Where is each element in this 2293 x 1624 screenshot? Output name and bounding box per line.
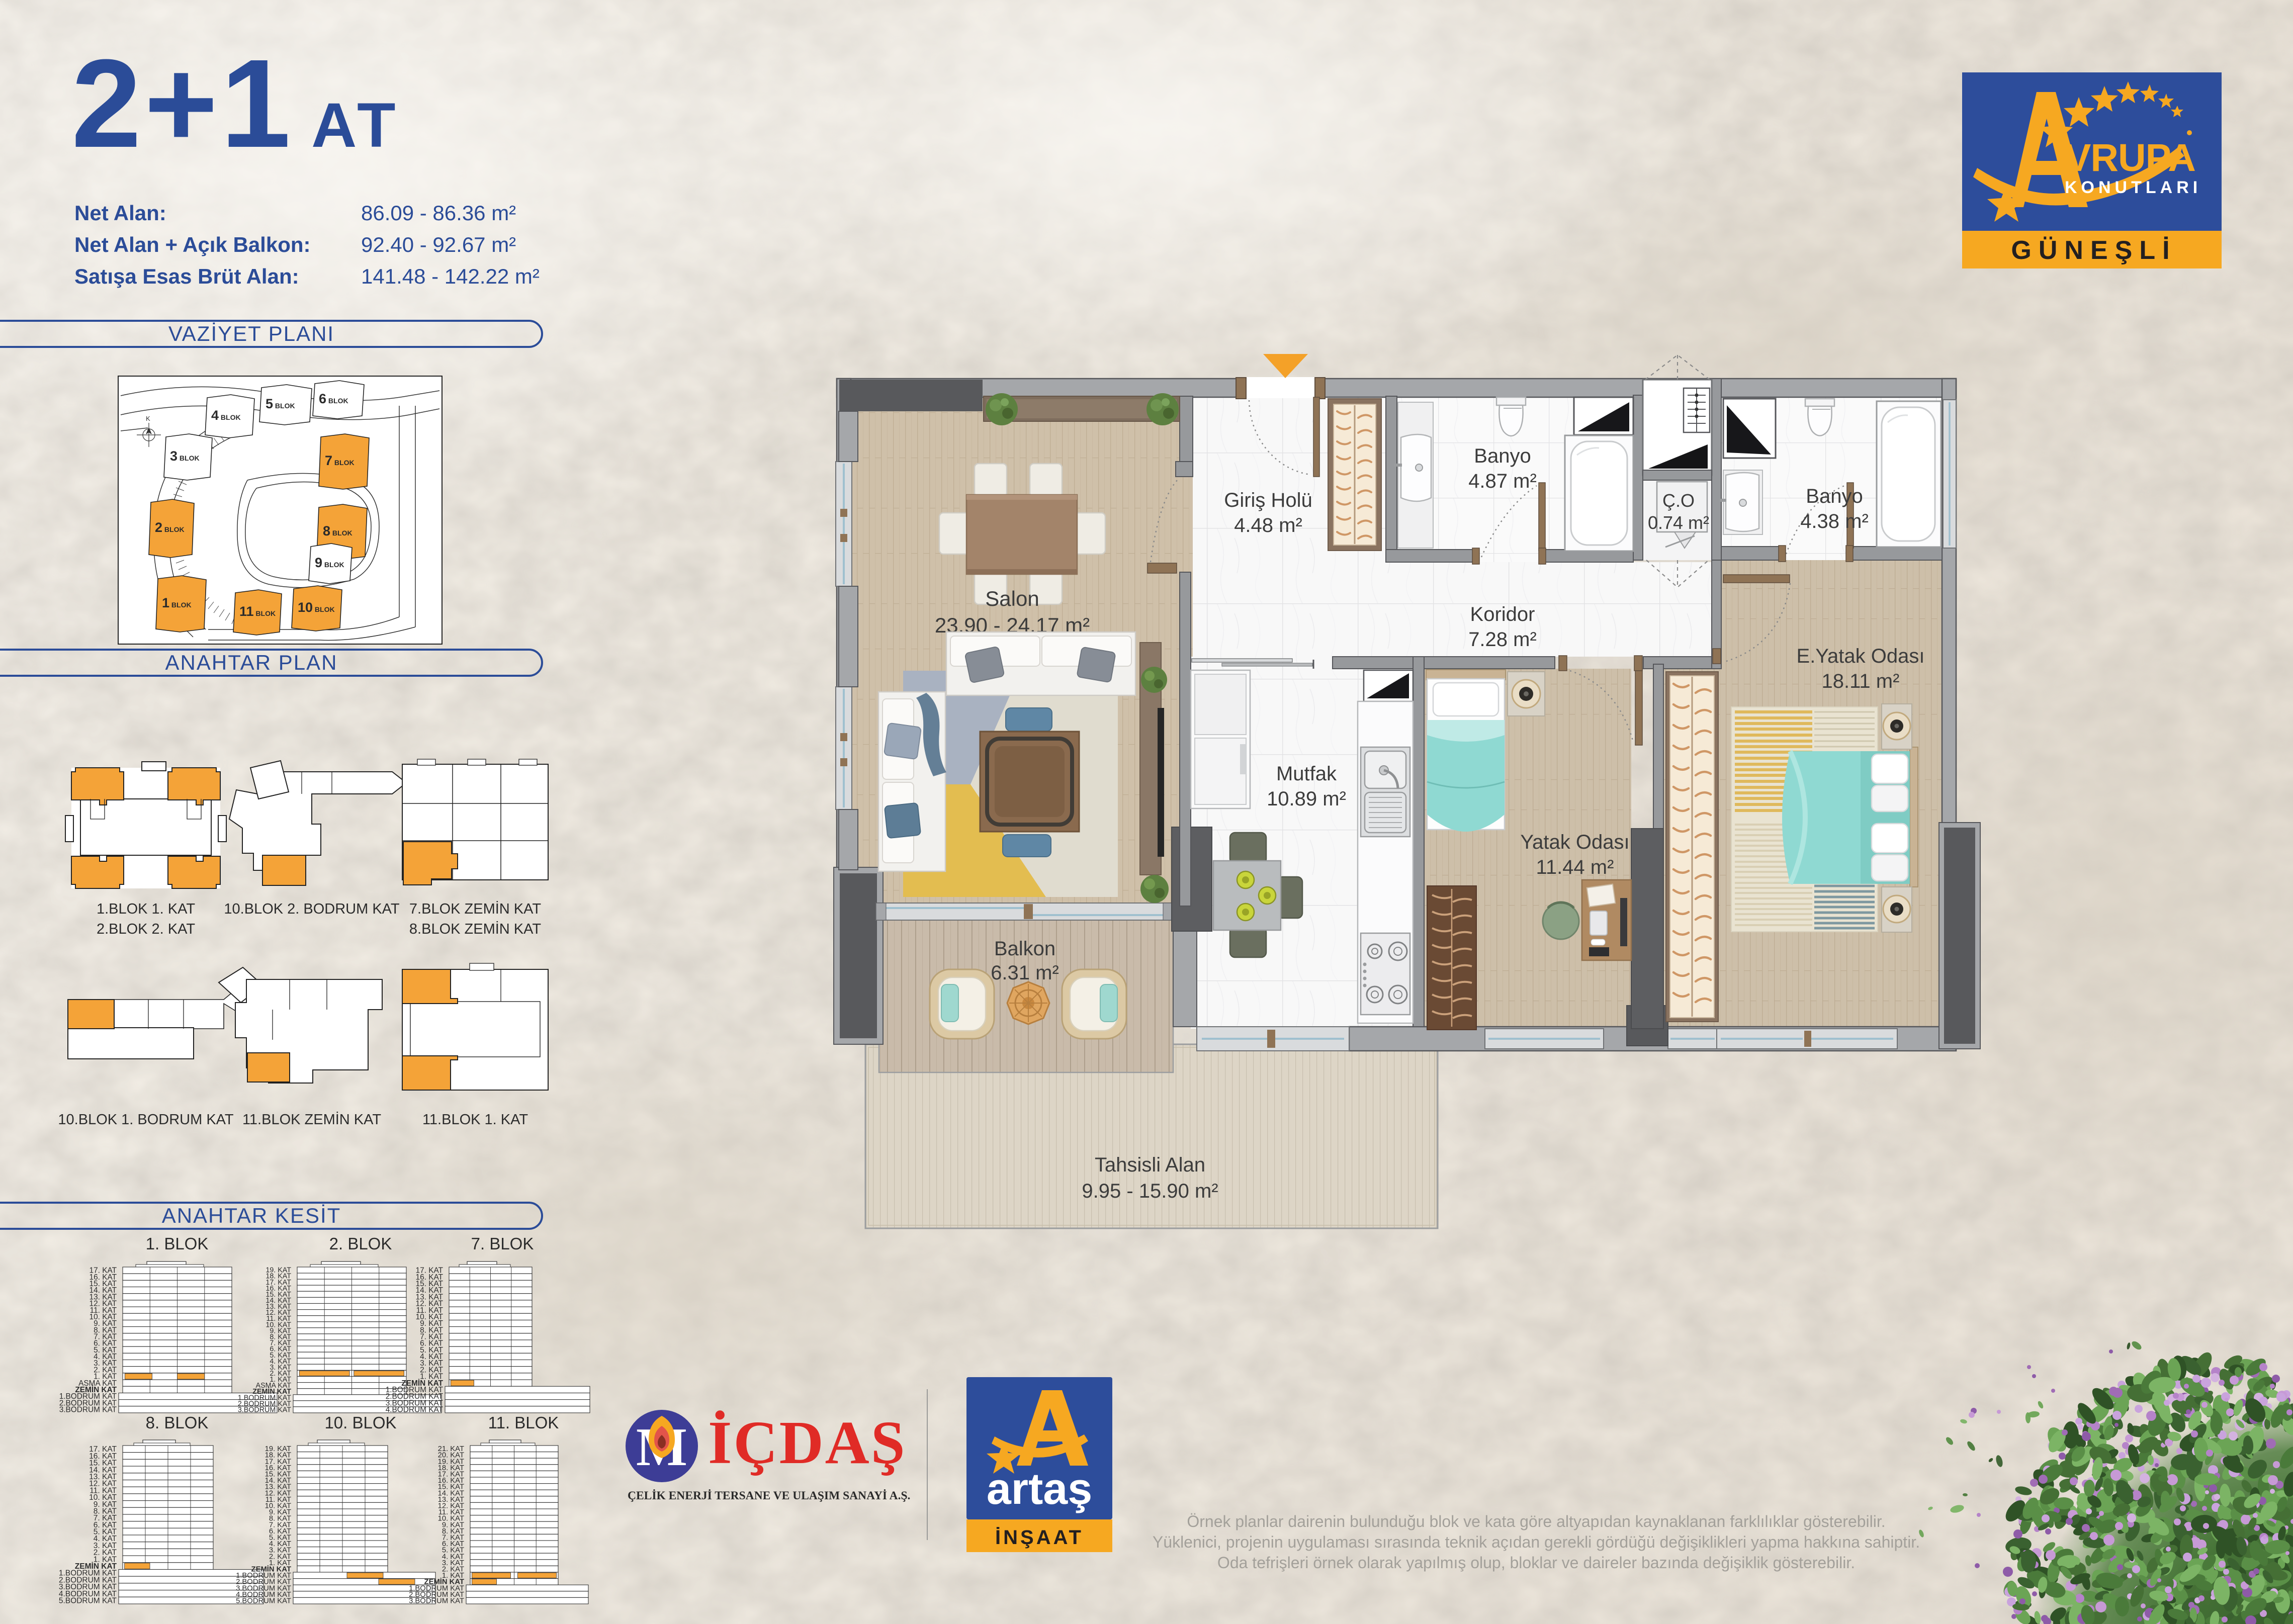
svg-text:10.BLOK 1. BODRUM KAT: 10.BLOK 1. BODRUM KAT xyxy=(58,1112,233,1128)
svg-text:4.48 m²: 4.48 m² xyxy=(1234,514,1302,536)
svg-text:4.38 m²: 4.38 m² xyxy=(1800,510,1869,532)
svg-text:E.Yatak Odası: E.Yatak Odası xyxy=(1797,645,1925,667)
svg-text:Giriş Holü: Giriş Holü xyxy=(1224,489,1312,511)
svg-text:11.BLOK ZEMİN KAT: 11.BLOK ZEMİN KAT xyxy=(242,1111,381,1128)
svg-text:Banyo: Banyo xyxy=(1474,445,1531,467)
svg-text:10. BLOK: 10. BLOK xyxy=(324,1413,396,1432)
svg-text:İÇDAŞ: İÇDAŞ xyxy=(708,1409,907,1477)
svg-text:Balkon: Balkon xyxy=(994,938,1055,960)
svg-text:11.44 m²: 11.44 m² xyxy=(1536,856,1614,878)
svg-text:artaş: artaş xyxy=(987,1464,1092,1513)
svg-text:ÇELİK ENERJİ TERSANE VE ULAŞIM: ÇELİK ENERJİ TERSANE VE ULAŞIM SANAYİ A.… xyxy=(628,1489,910,1502)
svg-text:11. BLOK: 11. BLOK xyxy=(488,1413,559,1432)
svg-text:9.95 - 15.90 m²: 9.95 - 15.90 m² xyxy=(1082,1180,1218,1202)
svg-text:6.31 m²: 6.31 m² xyxy=(991,962,1059,984)
svg-text:Yatak Odası: Yatak Odası xyxy=(1520,831,1629,853)
svg-text:1. BLOK: 1. BLOK xyxy=(146,1234,209,1253)
svg-text:K: K xyxy=(146,415,150,422)
svg-text:10.BLOK 2. BODRUM KAT: 10.BLOK 2. BODRUM KAT xyxy=(224,901,399,917)
svg-text:Tahsisli Alan: Tahsisli Alan xyxy=(1095,1154,1205,1176)
svg-text:4.BODRUM KAT: 4.BODRUM KAT xyxy=(386,1406,444,1414)
svg-text:2. BLOK: 2. BLOK xyxy=(329,1234,392,1253)
svg-text:3.BODRUM KAT: 3.BODRUM KAT xyxy=(409,1597,464,1605)
svg-text:Banyo: Banyo xyxy=(1806,485,1863,507)
svg-text:3.BODRUM KAT: 3.BODRUM KAT xyxy=(238,1406,291,1414)
svg-text:7.28 m²: 7.28 m² xyxy=(1468,628,1537,651)
svg-text:11.BLOK 1. KAT: 11.BLOK 1. KAT xyxy=(422,1112,528,1128)
svg-text:7.BLOK ZEMİN KAT: 7.BLOK ZEMİN KAT xyxy=(409,900,541,917)
svg-text:0.74 m²: 0.74 m² xyxy=(1648,512,1709,533)
svg-text:5.BODRUM KAT: 5.BODRUM KAT xyxy=(236,1597,291,1605)
svg-text:Ç.O: Ç.O xyxy=(1662,490,1695,511)
svg-text:4.87 m²: 4.87 m² xyxy=(1468,470,1537,492)
svg-text:1.BLOK 1. KAT: 1.BLOK 1. KAT xyxy=(97,901,195,917)
svg-text:Koridor: Koridor xyxy=(1470,603,1535,625)
svg-text:3.BODRUM KAT: 3.BODRUM KAT xyxy=(59,1406,117,1414)
svg-text:8. BLOK: 8. BLOK xyxy=(146,1413,209,1432)
svg-text:KONUTLARI: KONUTLARI xyxy=(2065,178,2201,197)
svg-text:2.BLOK 2. KAT: 2.BLOK 2. KAT xyxy=(97,921,195,937)
svg-text:VRUPA: VRUPA xyxy=(2065,136,2195,179)
svg-text:7. BLOK: 7. BLOK xyxy=(471,1234,534,1253)
svg-text:GÜNEŞLİ: GÜNEŞLİ xyxy=(2011,236,2176,265)
svg-text:Salon: Salon xyxy=(985,587,1039,610)
svg-text:8.BLOK ZEMİN KAT: 8.BLOK ZEMİN KAT xyxy=(409,921,541,937)
svg-text:Mutfak: Mutfak xyxy=(1276,763,1337,785)
svg-text:18.11 m²: 18.11 m² xyxy=(1822,670,1900,692)
svg-text:5.BODRUM KAT: 5.BODRUM KAT xyxy=(59,1597,117,1605)
svg-text:10.89 m²: 10.89 m² xyxy=(1267,788,1346,810)
svg-text:İNŞAAT: İNŞAAT xyxy=(995,1526,1084,1549)
